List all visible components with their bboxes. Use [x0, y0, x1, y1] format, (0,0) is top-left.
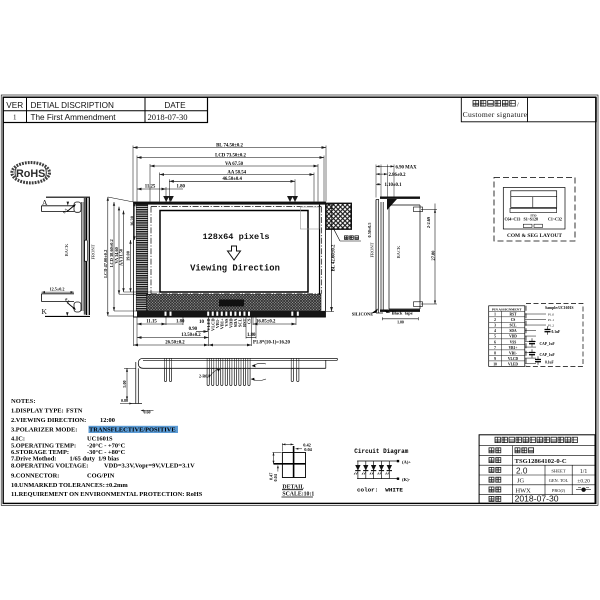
svg-text:The First Ammendment: The First Ammendment [31, 113, 117, 122]
svg-text:1/1: 1/1 [580, 469, 588, 475]
svg-text:Sample:UC1601S: Sample:UC1601S [545, 306, 573, 310]
svg-text:P1.1: P1.1 [548, 318, 554, 322]
svg-text:3: 3 [494, 324, 496, 328]
svg-text:16.30: 16.30 [130, 215, 135, 226]
svg-text:8.OPERATING VOLTAGE:: 8.OPERATING VOLTAGE: [11, 463, 88, 470]
svg-text:DETIAL DISCRIPTION: DETIAL DISCRIPTION [31, 101, 114, 110]
svg-text:2.86±0.2: 2.86±0.2 [389, 173, 407, 178]
svg-text:RST: RST [510, 313, 518, 317]
svg-text:PIN ASSIGNMENT: PIN ASSIGNMENT [492, 307, 522, 311]
svg-text:BACK: BACK [396, 245, 401, 258]
svg-text:12:00: 12:00 [100, 417, 115, 424]
svg-text:2018-07-30: 2018-07-30 [515, 494, 559, 504]
svg-text:0.04: 0.04 [304, 447, 312, 452]
svg-text:BACK: BACK [64, 243, 69, 256]
svg-text:VLCD: VLCD [508, 357, 519, 361]
svg-text:BL 42.60±0.2: BL 42.60±0.2 [332, 244, 337, 271]
svg-text:11.25: 11.25 [145, 184, 156, 189]
svg-text:COG/PIN: COG/PIN [87, 473, 115, 480]
svg-text:color: WHITE: color: WHITE [357, 487, 403, 494]
svg-text:VLED: VLED [508, 362, 518, 366]
svg-text:C1~C32: C1~C32 [548, 217, 562, 222]
svg-text:VSS: VSS [510, 340, 517, 344]
svg-text:GEN. TOL: GEN. TOL [549, 478, 569, 483]
svg-text:12.5±0.2: 12.5±0.2 [50, 287, 65, 292]
svg-text:C64~C33: C64~C33 [505, 217, 521, 222]
svg-text:P1.2: P1.2 [548, 324, 554, 328]
svg-text:1: 1 [494, 313, 496, 317]
svg-text:0.90: 0.90 [189, 327, 198, 332]
svg-text:0.60: 0.60 [144, 410, 151, 415]
svg-text:NOTES:: NOTES: [11, 398, 36, 405]
svg-text:1: 1 [13, 114, 17, 122]
svg-text:COM & SEG LAYOUT: COM & SEG LAYOUT [507, 233, 562, 239]
svg-text:10: 10 [199, 320, 205, 325]
svg-text:128x64 pixels: 128x64 pixels [202, 232, 269, 242]
svg-text:CAP_1uF: CAP_1uF [540, 342, 556, 346]
svg-text:10.UNMARKED TOLERANCES:: 10.UNMARKED TOLERANCES: [11, 482, 105, 489]
svg-text:1.DISPLAY TYPE:: 1.DISPLAY TYPE: [11, 408, 64, 415]
svg-text:±0.20: ±0.20 [577, 479, 590, 485]
svg-text:±0.2mm: ±0.2mm [106, 482, 129, 489]
svg-text:2-2.69: 2-2.69 [426, 216, 431, 228]
svg-text:11.15: 11.15 [146, 320, 157, 325]
svg-text:VA 67.50: VA 67.50 [225, 162, 244, 167]
svg-text:2018-07-30: 2018-07-30 [148, 112, 188, 122]
svg-text:1.00: 1.00 [397, 320, 404, 324]
svg-text:13.50±0.2: 13.50±0.2 [181, 333, 201, 338]
svg-text:AA 31.50: AA 31.50 [119, 248, 124, 266]
svg-text:8: 8 [494, 351, 496, 355]
svg-text:9.CONNECTOR:: 9.CONNECTOR: [11, 473, 59, 480]
svg-text:7: 7 [494, 346, 496, 350]
svg-text:P1.0: P1.0 [548, 313, 554, 317]
svg-text:3.POLARIZER MODE:: 3.POLARIZER MODE: [11, 427, 77, 434]
svg-text:SDA: SDA [509, 329, 517, 333]
svg-text:Circuit Diagram: Circuit Diagram [354, 448, 408, 455]
svg-text:2-R0.8: 2-R0.8 [199, 374, 210, 379]
svg-text:LCD 47.00±0.2: LCD 47.00±0.2 [103, 250, 108, 278]
svg-text:11.REQUIREMENT ON ENVIRONMENTA: 11.REQUIREMENT ON ENVIRONMENTAL PROTECTI… [11, 491, 203, 498]
svg-text:LCD 73.50±0.2: LCD 73.50±0.2 [215, 153, 246, 158]
svg-text:AA 58.54: AA 58.54 [227, 170, 246, 175]
svg-text:16.85±0.2: 16.85±0.2 [256, 320, 276, 325]
svg-text:0.04: 0.04 [273, 473, 278, 481]
svg-text:2: 2 [494, 318, 496, 322]
svg-text:1/65 duty 1/9 bias: 1/65 duty 1/9 bias [70, 456, 120, 463]
svg-text:SHEET: SHEET [551, 469, 565, 474]
svg-text:Customer signature: Customer signature [463, 110, 528, 119]
svg-text:PRO(J): PRO(J) [552, 488, 566, 493]
svg-text:RoHS: RoHS [16, 168, 45, 180]
svg-text:FRONT: FRONT [91, 244, 96, 259]
svg-text:K: K [42, 307, 48, 316]
svg-text:VDD=3.3V,Vopr=9V,VLED=3.1V: VDD=3.3V,Vopr=9V,VLED=3.1V [104, 463, 195, 470]
svg-text:VER: VER [6, 101, 23, 110]
svg-text:/: / [517, 102, 519, 109]
svg-text:46.50±0.4: 46.50±0.4 [222, 177, 242, 182]
svg-text:S1~S128: S1~S128 [524, 217, 539, 222]
svg-text:FSTN: FSTN [66, 408, 83, 415]
svg-text:P1.8*(10-1)=16.20: P1.8*(10-1)=16.20 [253, 341, 290, 346]
svg-text:FRONT: FRONT [370, 242, 375, 257]
svg-text:VB1+: VB1+ [509, 346, 518, 350]
svg-text:CS: CS [511, 318, 516, 322]
svg-text:6.90 MAX: 6.90 MAX [396, 165, 418, 170]
svg-text:TSG12864102-0-C: TSG12864102-0-C [515, 458, 567, 465]
svg-text:9: 9 [494, 357, 496, 361]
svg-text:SCL: SCL [510, 324, 518, 328]
svg-text:SILICONE: SILICONE [352, 311, 374, 316]
svg-text:DATE: DATE [164, 101, 186, 110]
svg-text:2.0: 2.0 [516, 467, 528, 476]
svg-text:4: 4 [494, 329, 496, 333]
svg-text:1.10±0.1: 1.10±0.1 [385, 183, 403, 188]
svg-text:0.1uF: 0.1uF [552, 330, 561, 334]
svg-text:7.Drive Mothod:: 7.Drive Mothod: [11, 456, 56, 463]
svg-text:0.80: 0.80 [121, 398, 128, 403]
svg-text:JG: JG [517, 478, 524, 485]
svg-text:(K)-: (K)- [402, 477, 411, 482]
svg-text:0.1uF: 0.1uF [545, 360, 554, 364]
svg-text:26.50±0.2: 26.50±0.2 [165, 341, 185, 346]
svg-text:10: 10 [493, 362, 497, 366]
svg-text:6: 6 [494, 340, 496, 344]
svg-text:VB1-: VB1- [509, 351, 518, 355]
svg-text:1.80: 1.80 [176, 320, 185, 325]
svg-text:Viewing Direction: Viewing Direction [190, 264, 280, 274]
svg-text:(A)+: (A)+ [402, 459, 411, 464]
svg-text:1.80: 1.80 [177, 184, 186, 189]
svg-text:0.50±0.5: 0.50±0.5 [367, 223, 372, 238]
svg-text:19.00: 19.00 [126, 250, 131, 261]
svg-text:BL 74.50±0.2: BL 74.50±0.2 [216, 143, 243, 148]
svg-text:Black tape: Black tape [392, 311, 413, 316]
svg-text:CS: CS [247, 318, 252, 324]
svg-text:CAP_1uF: CAP_1uF [540, 353, 556, 357]
svg-text:5: 5 [494, 335, 496, 339]
svg-text:5.00: 5.00 [122, 380, 127, 387]
svg-text:27.80: 27.80 [430, 250, 435, 261]
svg-text:VDD: VDD [509, 335, 517, 339]
svg-text:TRANSFLECTIVE/POSITIVE: TRANSFLECTIVE/POSITIVE [89, 427, 176, 434]
svg-text:2.VIEWING DIRECTION:: 2.VIEWING DIRECTION: [11, 417, 86, 424]
